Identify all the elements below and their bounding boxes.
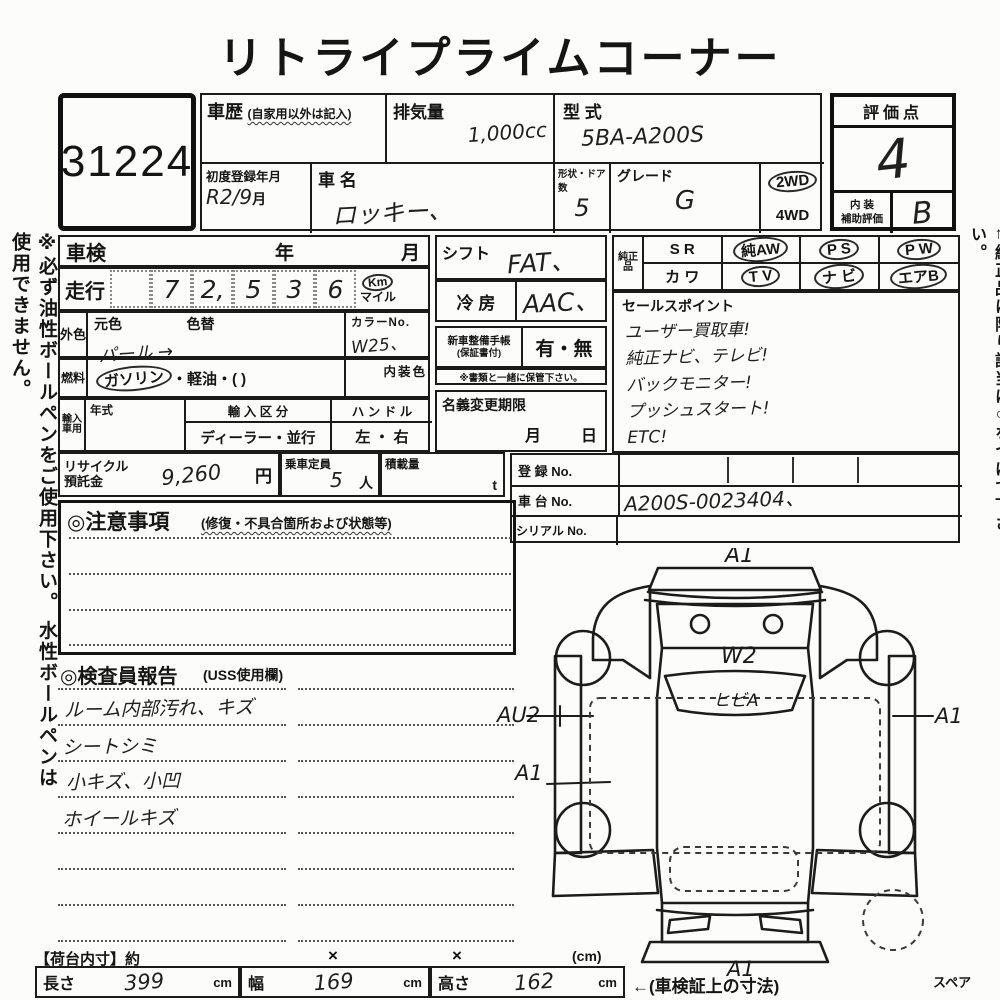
notes-subtitle: (修復・不具合箇所および状態等): [201, 513, 392, 532]
front-bumper: [649, 568, 821, 590]
diagram-right-label: A1: [933, 704, 963, 728]
inspector-subtitle: (USS使用欄): [203, 665, 283, 685]
dims-source-note: ←(車検証上の寸法): [632, 972, 779, 997]
headlamp-left: [691, 615, 709, 633]
genuine-ps: P S: [801, 237, 880, 264]
right-rear-quarter: [812, 850, 917, 896]
serial-no-label-cell: シリアル No.: [512, 515, 618, 545]
fuel-row: 燃料 ガソリン ・軽油・( ) 内装色: [58, 358, 430, 398]
displacement-cell: 排気量 1,000cc: [387, 95, 555, 162]
headlamp-right: [764, 615, 782, 633]
month-suffix: 月: [252, 191, 266, 207]
inspector-title: ◎検査員報告: [60, 660, 177, 689]
recycle-deposit-unit: 円: [255, 462, 278, 487]
odometer-digit: 2,: [192, 270, 233, 308]
right-front-door-panel: [820, 586, 877, 678]
page-title: リトライプライムコーナー: [190, 22, 810, 86]
header-table: 車歴 (自家用以外は記入) 排気量 1,000cc 型 式 5BA-A200S …: [200, 93, 822, 231]
front-panel: [657, 604, 813, 648]
interior-rating-row: 内 装 補助評価 B: [834, 190, 952, 233]
grade-label: グレード: [617, 166, 753, 186]
capacity-value: 5: [330, 468, 343, 492]
model-cell: 型 式 5BA-A200S: [555, 95, 824, 162]
ruled-line: [298, 688, 514, 690]
genuine-parts-label: 純正品: [614, 237, 644, 289]
import-class-cell: 輸 入 区 分 ディーラー・並行: [186, 400, 332, 450]
serial-no-label: シリアル No.: [516, 522, 587, 539]
service-book-label-main: 新車整備手帳: [448, 335, 511, 348]
shaken-label: 車検: [60, 237, 106, 266]
exterior-color-row: 外色 元色 色替 パール → カラーNo. W25、: [58, 311, 430, 358]
history-note: (自家用以外は記入): [247, 107, 351, 121]
chassis-no-label-cell: 車 台 No.: [512, 485, 620, 517]
sales-points-box: セールスポイント ユーザー買取車! 純正ナビ、テレビ! バックモニター! プッシ…: [612, 291, 960, 453]
inspector-finding: ルーム内部汚れ、キズ: [64, 692, 254, 722]
history-cell: 車歴 (自家用以外は記入): [202, 95, 387, 162]
load-capacity-unit: t: [492, 477, 497, 493]
genuine-ps-circled: P S: [818, 237, 860, 261]
import-year-cell: 年式: [86, 400, 186, 450]
ruled-line: [298, 940, 514, 942]
genuine-sr: S R: [644, 237, 723, 264]
transfer-deadline-label: 名義変更期限: [442, 395, 526, 415]
right-margin-note: ←純正品に限り該当に○をつけて下さい。: [964, 226, 1000, 561]
service-book-label-sub: (保証書付): [457, 348, 501, 359]
notes-title: ◎注意事項: [67, 506, 169, 536]
ruled-line: [58, 688, 286, 690]
genuine-airbag: エアB: [880, 264, 959, 289]
ruled-line: [69, 573, 511, 575]
front-grille-line: [648, 592, 822, 598]
inspector-report: ◎検査員報告 (USS使用欄) ルーム内部汚れ、キズ シートシミ 小キズ、小凹 …: [58, 660, 516, 955]
divider: [727, 457, 729, 483]
notes-box: ◎注意事項 (修復・不具合箇所および状態等): [58, 500, 516, 655]
recycle-deposit-label: リサイクル 預託金: [60, 460, 128, 490]
drive-cell: 2WD 4WD: [761, 164, 824, 233]
length-cell: 長さ 399 cm: [35, 966, 240, 998]
first-registration-cell: 初度登録年月 R2/9月: [202, 164, 312, 233]
right-front-wheel: [860, 631, 914, 685]
car-name-value: ロッキー、: [317, 185, 548, 232]
cargo-x1: ×: [328, 946, 338, 966]
capacity-label: 乗車定員: [285, 456, 331, 472]
car-name-cell: 車 名 ロッキー、: [312, 164, 555, 233]
sales-points-lines: ユーザー買取車! 純正ナビ、テレビ! バックモニター! プッシュスタート! ET…: [620, 312, 951, 452]
registration-table: 登 録 No. 車 台 No. A200S-0023404、 シリアル No.: [510, 453, 960, 543]
mileage-row: 走行 7 2, 5 3 6 Km マイル: [58, 267, 430, 311]
left-front-door-panel: [593, 586, 650, 678]
interior-rating-value-cell: B: [893, 193, 952, 233]
exterior-color-cell: 元色 色替 パール →: [88, 313, 346, 356]
transfer-deadline-cell: 名義変更期限 月 日: [435, 390, 607, 452]
ruled-line: [58, 940, 286, 942]
chassis-no-value: A200S-0023404、: [624, 482, 806, 517]
import-class-label: 輸 入 区 分: [186, 400, 330, 423]
diagram-left-front-label: AU2: [495, 703, 540, 727]
chassis-no-label: 車 台 No.: [518, 491, 572, 510]
spare-tire-dashed: [863, 890, 923, 950]
ruled-line: [58, 760, 286, 762]
diagram-left-rear-label: A1: [513, 761, 543, 785]
color-no-cell: カラーNo. W25、: [346, 313, 432, 356]
handle-options: 左 ・ 右: [332, 423, 432, 447]
width-label: 幅: [248, 970, 264, 994]
a1-left-pointer: [547, 782, 610, 784]
grade-cell: グレード G: [611, 164, 761, 233]
history-label: 車歴: [207, 102, 243, 122]
service-book-note: ※書類と一緒に保管下さい。: [435, 368, 607, 385]
color-change-label: 色替: [186, 316, 214, 332]
genuine-pw-circled: P W: [896, 237, 942, 262]
ruled-line: [69, 609, 511, 611]
width-unit: cm: [403, 975, 422, 990]
recycle-deposit-value: 9,260: [127, 456, 255, 493]
inspector-finding: 小キズ、小凹: [66, 766, 180, 795]
divider: [792, 457, 794, 483]
interior-rating-value: B: [911, 195, 935, 232]
import-label: 輸入車用: [60, 400, 86, 450]
import-row: 輸入車用 年式 輸 入 区 分 ディーラー・並行 ハ ン ド ル 左 ・ 右: [58, 398, 430, 452]
odometer-digit: 5: [233, 270, 274, 308]
left-rear-wheel: [556, 803, 610, 857]
inspector-finding: シートシミ: [62, 731, 157, 760]
rating-score-label: 評価点: [834, 97, 952, 128]
service-book-label: 新車整備手帳 (保証書付): [437, 328, 523, 366]
divider: [512, 515, 962, 517]
lot-number: 31224: [58, 93, 196, 231]
interior-label-bottom: 補助評価: [841, 213, 883, 227]
load-capacity-cell: 積載量 t: [380, 452, 505, 497]
shaken-year-label: 年: [275, 238, 294, 265]
first-registration-label: 初度登録年月: [206, 166, 306, 185]
recycle-label-1: リサイクル: [64, 460, 128, 475]
shaken-month-label: 月: [401, 238, 420, 265]
recycle-deposit-cell: リサイクル 預託金 9,260 円: [58, 452, 280, 497]
shaken-row: 車検 年 月: [58, 235, 430, 267]
length-unit: cm: [213, 975, 232, 990]
service-book-cell: 新車整備手帳 (保証書付) 有・無: [435, 326, 607, 368]
inspector-finding: ホイールキズ: [62, 803, 176, 832]
rating-score: 4: [834, 128, 952, 190]
shape-doors-label: 形状・ドア数: [558, 166, 606, 194]
capacity-cell: 乗車定員 5 人: [280, 452, 380, 497]
ruled-line: [298, 724, 514, 726]
cargo-unit: (cm): [572, 948, 602, 964]
ruled-line: [58, 904, 286, 906]
ac-value: AAC、: [516, 280, 606, 323]
height-cell: 高さ 162 cm: [430, 966, 625, 998]
shift-label: シフト: [442, 240, 490, 264]
taillight-left: [668, 916, 710, 933]
left-rear-quarter: [553, 850, 658, 896]
genuine-aw: 純AW: [723, 237, 802, 264]
width-value: 169: [263, 965, 404, 999]
genuine-tv: T V: [723, 264, 802, 289]
odometer-digit: 6: [315, 270, 356, 308]
ruled-line: [298, 868, 514, 870]
diagram-hood-label: W2: [721, 644, 757, 669]
ruled-line: [298, 904, 514, 906]
rear-panel: [662, 903, 808, 942]
ac-label: 冷 房: [437, 282, 517, 320]
cargo-x2: ×: [452, 946, 462, 966]
model-value: 5BA-A200S: [563, 119, 817, 153]
drive-4wd-option: 4WD: [761, 198, 824, 232]
genuine-leather: カ ワ: [644, 264, 723, 289]
grade-value: G: [617, 186, 753, 216]
genuine-parts-cells: S R 純AW P S P W カ ワ T V ナ ビ エアB: [644, 237, 958, 289]
first-registration-value: R2/9: [206, 185, 252, 209]
ruled-line: [298, 796, 514, 798]
length-value: 399: [74, 965, 214, 999]
genuine-leather-text: カ ワ: [665, 266, 699, 287]
fuel-label: 燃料: [60, 360, 88, 396]
genuine-navi-circled: ナ ビ: [813, 262, 865, 291]
ruled-line: [298, 760, 514, 762]
odometer-digit: 3: [274, 270, 315, 308]
left-margin-note: ※必ず油性ボールペンをご使用下さい。 水性ボールペンは使用できません。: [6, 232, 60, 792]
import-year-label: 年式: [90, 405, 113, 417]
mileage-unit-cell: Km マイル: [360, 274, 396, 304]
mileage-unit-mile: マイル: [360, 291, 396, 304]
shape-doors-value: 5: [558, 194, 606, 222]
interior-color-cell: 内装色: [346, 360, 432, 396]
genuine-aw-circled: 純AW: [732, 235, 789, 265]
import-class-options: ディーラー・並行: [186, 423, 330, 448]
interior-label-top: 内 装: [850, 199, 874, 213]
ruled-line: [69, 537, 511, 539]
height-value: 162: [469, 966, 599, 999]
odometer-digit: [110, 270, 151, 308]
body-side-left: [657, 648, 662, 903]
divider: [512, 485, 962, 487]
shift-cell: シフト FAT、: [435, 235, 607, 280]
length-label: 長さ: [43, 970, 75, 994]
transfer-month: 月: [525, 422, 541, 446]
registration-no-label-cell: 登 録 No.: [512, 455, 620, 487]
genuine-tv-circled: T V: [740, 264, 781, 288]
genuine-navi: ナ ビ: [801, 264, 880, 289]
rating-box: 評価点 4 内 装 補助評価 B: [830, 93, 956, 231]
auction-sheet: リトライプライムコーナー ※必ず油性ボールペンをご使用下さい。 水性ボールペンは…: [0, 0, 1000, 1000]
fuel-gasoline-circled: ガソリン: [95, 362, 173, 394]
height-label: 高さ: [438, 970, 470, 994]
diagram-front-label: A1: [723, 548, 754, 568]
drive-2wd-circled: 2WD: [767, 168, 818, 193]
left-front-wheel: [556, 631, 610, 685]
ac-cell: 冷 房 AAC、: [435, 280, 607, 322]
recycle-label-2: 預託金: [64, 475, 128, 490]
right-rear-wheel: [860, 803, 914, 857]
capacity-unit: 人: [359, 473, 373, 493]
ruled-line: [58, 868, 286, 870]
rear-panel-line: [657, 910, 813, 915]
width-cell: 幅 169 cm: [240, 966, 430, 998]
genuine-pw: P W: [880, 237, 959, 264]
genuine-airbag-circled: エアB: [889, 262, 948, 292]
ruled-line: [298, 832, 514, 834]
handle-label: ハ ン ド ル: [332, 400, 432, 423]
handle-cell: ハ ン ド ル 左 ・ 右: [332, 400, 432, 450]
interior-color-label: 内装色: [351, 361, 427, 380]
genuine-sr-text: S R: [670, 241, 695, 258]
ruled-line: [58, 832, 286, 834]
ruled-line: [69, 644, 511, 646]
rating-score-value: 4: [873, 126, 914, 192]
color-no-value: W25、: [350, 327, 428, 359]
car-damage-diagram: A1 W2 ヒビA AU2 A1 A1 A1: [495, 548, 965, 978]
drive-2wd-option: 2WD: [761, 164, 824, 198]
odometer-digit: 7: [151, 270, 192, 308]
diagram-windshield-label: ヒビA: [713, 691, 759, 711]
shape-doors-cell: 形状・ドア数 5: [555, 164, 611, 233]
genuine-parts-grid: 純正品 S R 純AW P S P W カ ワ T V ナ ビ エアB: [612, 235, 960, 291]
original-color-label: 元色: [94, 316, 122, 332]
body-side-right: [808, 648, 813, 903]
shift-value: FAT、: [506, 241, 577, 282]
divider: [857, 457, 859, 483]
fuel-other-options: ・軽油・( ): [172, 368, 246, 389]
exterior-color-label: 外色: [60, 313, 88, 356]
fuel-options-cell: ガソリン ・軽油・( ): [88, 360, 346, 396]
ruled-line: [58, 796, 286, 798]
service-book-options: 有・無: [523, 328, 605, 366]
taillight-right: [760, 916, 802, 933]
spare-tire-label: スペア: [933, 972, 971, 991]
ruled-line: [58, 724, 286, 726]
mileage-label: 走行: [60, 275, 110, 304]
interior-rating-label: 内 装 補助評価: [834, 193, 893, 233]
floor-outline-dashed: [590, 698, 880, 853]
height-unit: cm: [598, 975, 617, 990]
load-capacity-label: 積載量: [385, 456, 420, 472]
transfer-day: 日: [581, 422, 597, 446]
registration-no-label: 登 録 No.: [518, 461, 572, 480]
